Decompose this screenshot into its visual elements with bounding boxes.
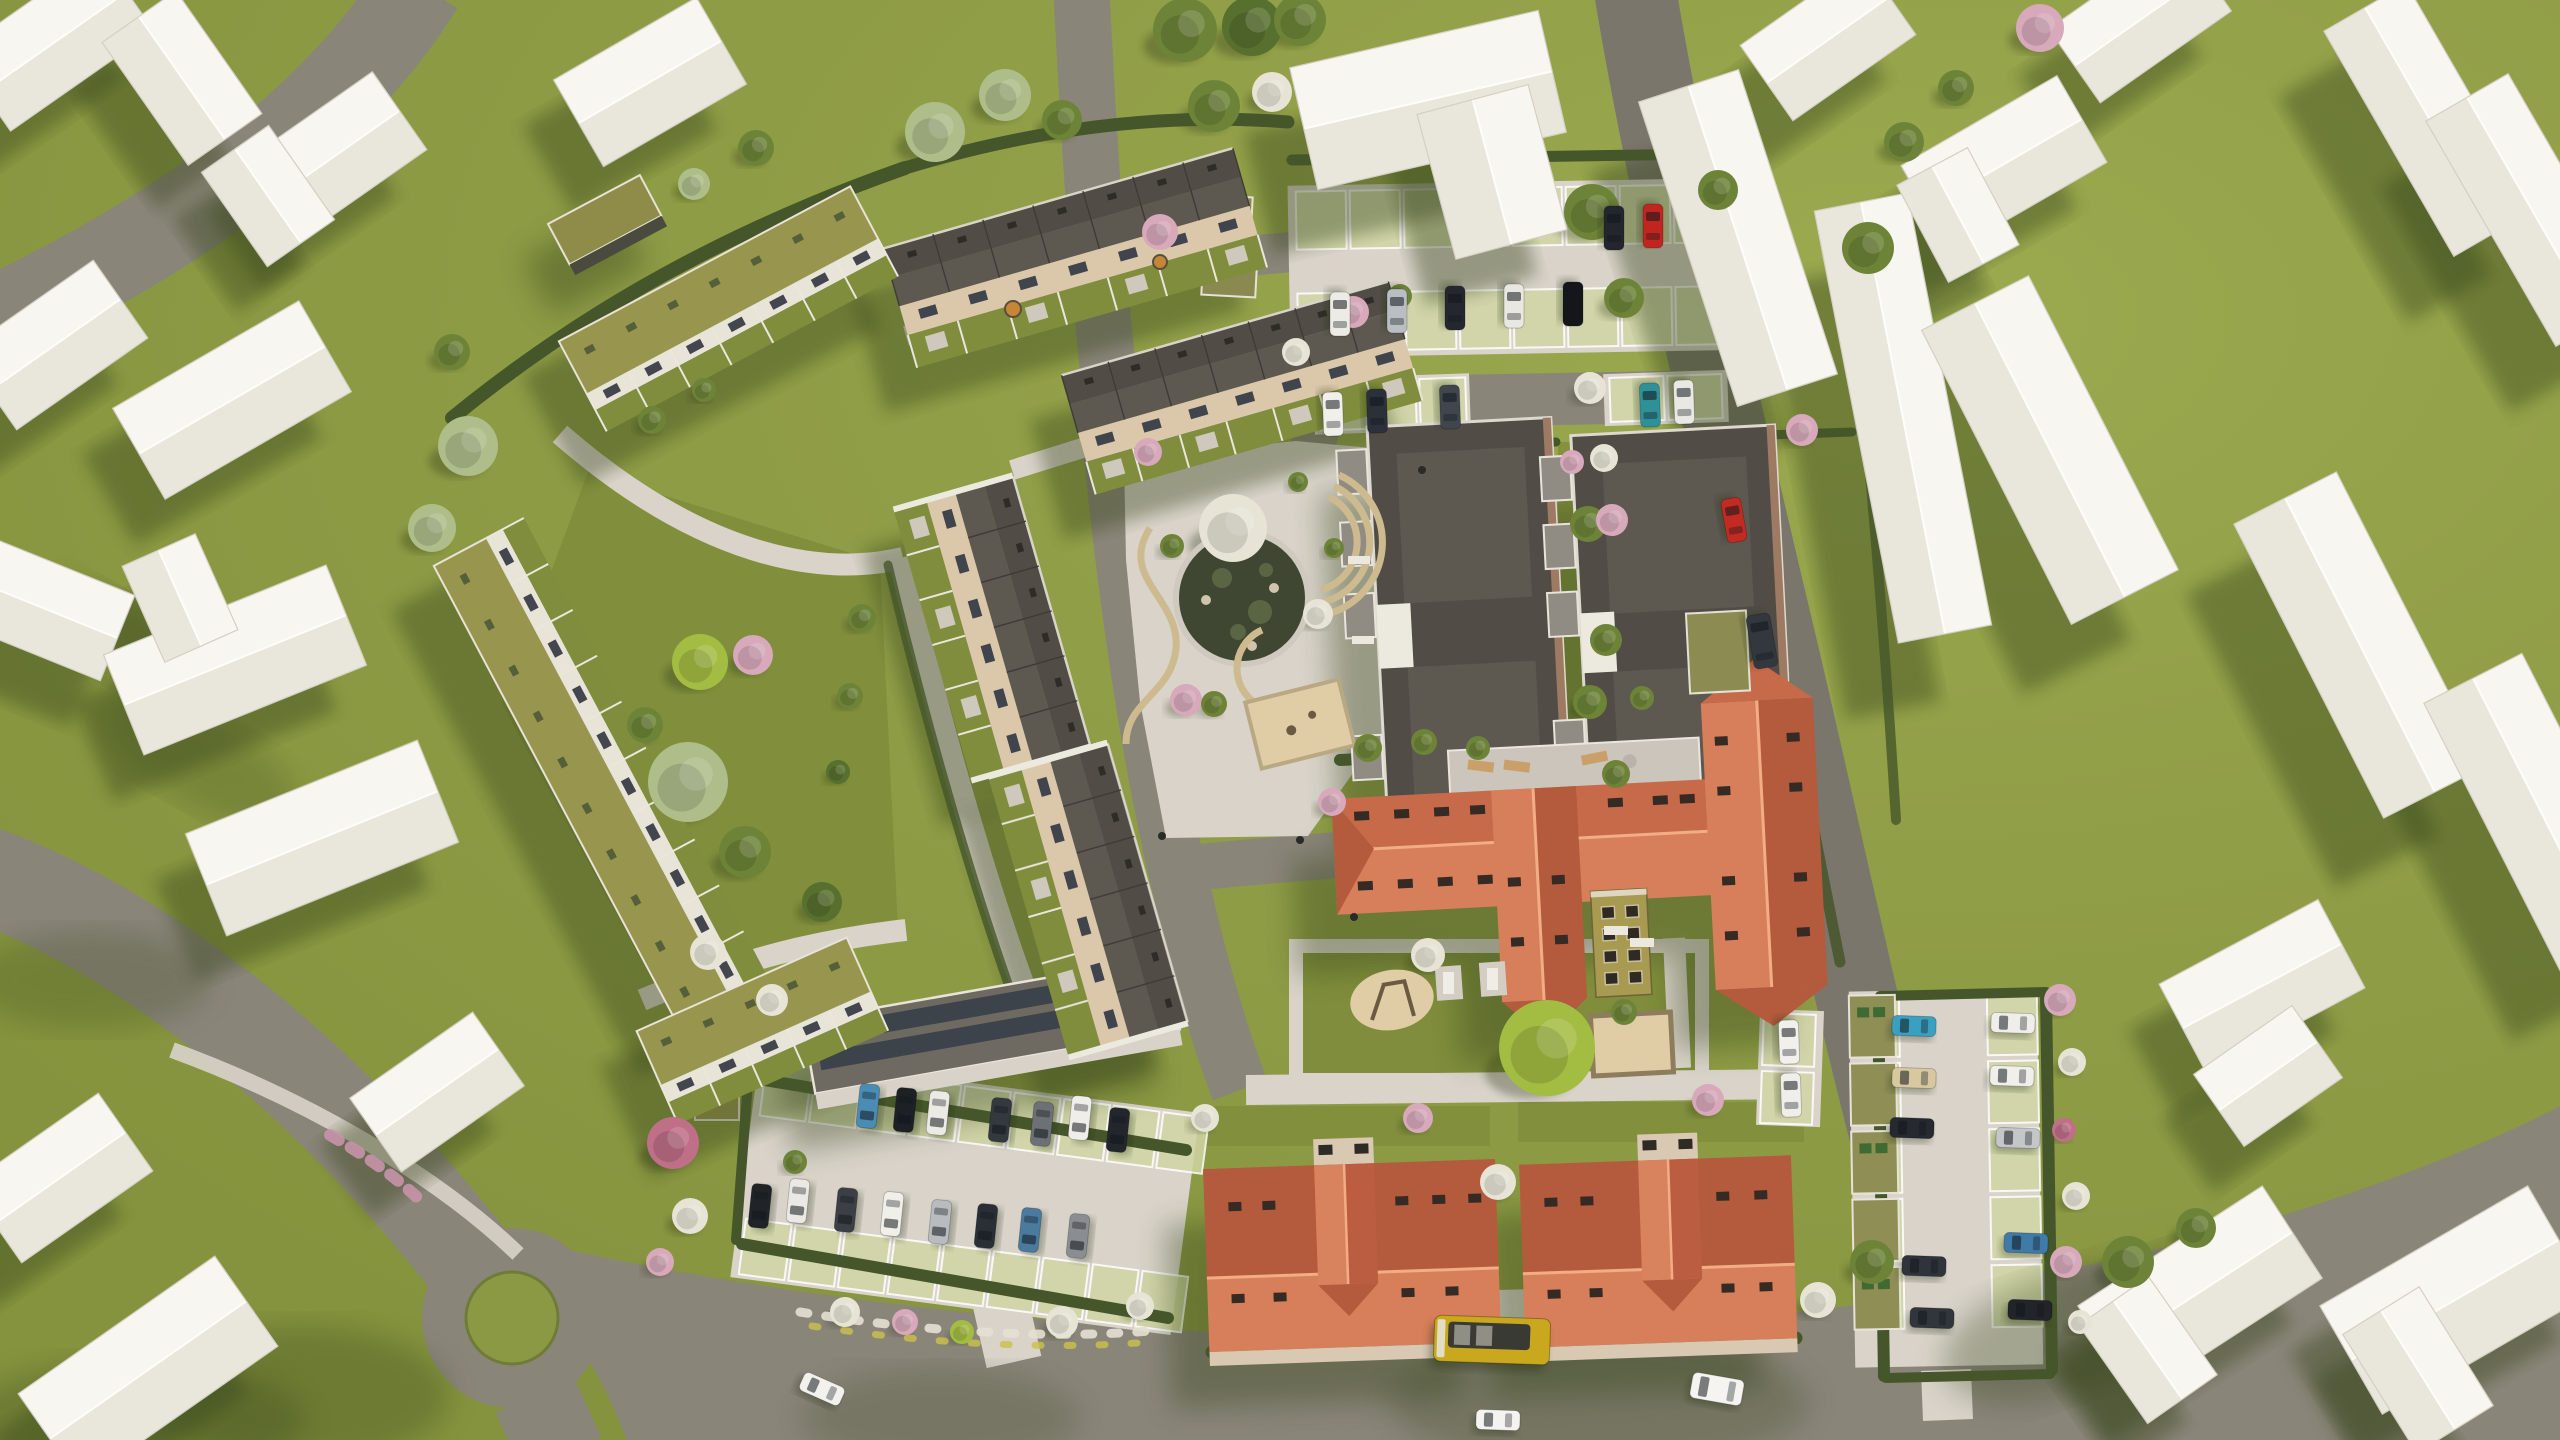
- tree: [1042, 100, 1082, 140]
- car: [1638, 201, 1663, 248]
- tree: [1134, 438, 1162, 466]
- car: [1906, 1307, 1954, 1334]
- stair-core: [1376, 603, 1413, 669]
- trampoline: [1005, 301, 1021, 317]
- aerial-site-render: [0, 0, 2560, 1440]
- tree: [979, 69, 1031, 121]
- roundabout-island: [466, 1272, 558, 1364]
- tree: [692, 378, 716, 402]
- car: [892, 1087, 922, 1136]
- car: [927, 1199, 957, 1248]
- tree: [1160, 534, 1184, 558]
- car: [855, 1083, 885, 1132]
- car: [1886, 1117, 1934, 1144]
- car: [1992, 1127, 2040, 1154]
- road-south-stub: [535, 1395, 562, 1440]
- tree: [1411, 729, 1437, 755]
- tree: [1590, 624, 1622, 656]
- car: [833, 1187, 863, 1236]
- car: [1382, 286, 1407, 333]
- tree: [648, 742, 728, 822]
- tree: [950, 1320, 974, 1344]
- tree: [672, 1198, 708, 1234]
- bench: [1630, 938, 1654, 947]
- car: [925, 1090, 955, 1139]
- car: [1105, 1107, 1135, 1156]
- tree: [848, 604, 876, 632]
- tree: [719, 826, 771, 878]
- tree: [627, 707, 663, 743]
- tree: [1288, 472, 1308, 492]
- tree: [826, 760, 850, 784]
- car: [1634, 380, 1661, 428]
- tree: [2068, 1310, 2092, 1334]
- car: [973, 1203, 1003, 1252]
- car: [1773, 1017, 1800, 1065]
- bench: [1604, 926, 1628, 935]
- bench: [1348, 556, 1370, 564]
- tree: [1842, 222, 1894, 274]
- car: [1361, 386, 1388, 434]
- tree: [733, 635, 773, 675]
- car: [1499, 281, 1524, 328]
- tree: [1153, 0, 1217, 62]
- car: [1434, 382, 1461, 430]
- tree: [1786, 414, 1818, 446]
- car: [1775, 1070, 1802, 1118]
- car: [1029, 1101, 1059, 1150]
- tree: [1191, 1104, 1219, 1132]
- tree: [1499, 1000, 1595, 1096]
- tree: [1199, 494, 1267, 562]
- tree: [672, 634, 728, 690]
- car: [785, 1178, 815, 1227]
- tree: [1201, 691, 1227, 717]
- tree: [647, 1117, 699, 1169]
- tree: [837, 683, 863, 709]
- tree: [408, 504, 456, 552]
- tree: [830, 1297, 860, 1327]
- tree: [1800, 1282, 1836, 1318]
- tree: [1692, 1084, 1724, 1116]
- car: [1558, 279, 1583, 326]
- bus: [1429, 1315, 1551, 1372]
- tree: [2044, 984, 2076, 1016]
- tree: [1403, 1103, 1433, 1133]
- car: [879, 1191, 909, 1240]
- tree: [1282, 338, 1310, 366]
- tree: [638, 406, 666, 434]
- bike-shed: [1686, 610, 1750, 693]
- tree: [1411, 938, 1445, 972]
- tree: [1630, 686, 1654, 710]
- tree: [1142, 214, 1178, 250]
- tree: [434, 334, 470, 370]
- tree: [1884, 122, 1924, 162]
- car: [1986, 1065, 2034, 1092]
- orange-apartment-south-east: [1518, 1129, 1798, 1361]
- tree: [756, 984, 788, 1016]
- car: [1987, 1012, 2035, 1039]
- car: [1472, 1409, 1520, 1436]
- tree: [1611, 999, 1637, 1025]
- tree: [1573, 685, 1607, 719]
- tree: [1188, 80, 1240, 132]
- tree: [1480, 1164, 1516, 1200]
- tree: [1590, 444, 1618, 472]
- tree: [1850, 1240, 1894, 1284]
- car: [1017, 1207, 1047, 1256]
- car: [1065, 1213, 1095, 1262]
- tree: [690, 934, 726, 970]
- tree: [1466, 736, 1490, 760]
- tree: [738, 130, 774, 166]
- car: [2004, 1299, 2052, 1326]
- tree: [678, 168, 710, 200]
- tree: [783, 1150, 807, 1174]
- car: [2000, 1232, 2048, 1259]
- tree: [1046, 1306, 1078, 1338]
- tree: [892, 1309, 918, 1335]
- tree: [802, 882, 842, 922]
- tree: [1604, 278, 1644, 318]
- car: [1888, 1015, 1936, 1042]
- tree: [1602, 760, 1630, 788]
- car: [1325, 289, 1350, 336]
- tree: [1170, 684, 1202, 716]
- tree: [1354, 734, 1382, 762]
- lounger: [1443, 972, 1454, 994]
- tree: [646, 1248, 674, 1276]
- trampoline: [1153, 255, 1167, 269]
- car: [1317, 389, 1344, 437]
- lounger: [1487, 968, 1498, 990]
- tree: [2058, 1048, 2086, 1076]
- tree: [2062, 1182, 2090, 1210]
- car: [1440, 283, 1465, 330]
- tree: [2052, 1118, 2076, 1142]
- tree: [1574, 372, 1606, 404]
- tree: [2176, 1208, 2216, 1248]
- tree: [2050, 1246, 2082, 1278]
- car: [1898, 1255, 1946, 1282]
- car: [1599, 203, 1624, 250]
- tree: [2016, 4, 2064, 52]
- tree: [2102, 1236, 2154, 1288]
- car: [747, 1183, 777, 1232]
- tree: [1324, 538, 1344, 558]
- car: [1067, 1095, 1097, 1144]
- tree: [438, 416, 498, 476]
- tree: [1698, 170, 1738, 210]
- tree: [1252, 72, 1292, 112]
- tree: [1938, 70, 1974, 106]
- tree: [1126, 1292, 1154, 1320]
- car: [1888, 1067, 1936, 1094]
- car: [987, 1097, 1017, 1146]
- bench: [1352, 636, 1374, 644]
- tree: [1596, 504, 1628, 536]
- tree: [1318, 788, 1346, 816]
- tree: [905, 102, 965, 162]
- tree: [1303, 599, 1333, 629]
- car: [1668, 377, 1695, 425]
- tree: [1560, 450, 1584, 474]
